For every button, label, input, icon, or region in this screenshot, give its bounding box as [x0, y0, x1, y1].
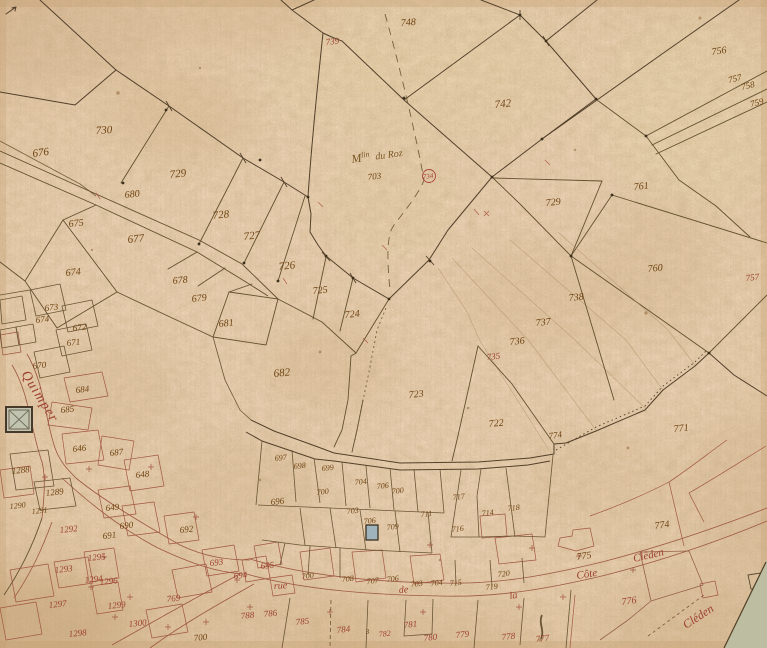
svg-text:704: 704	[430, 578, 443, 588]
svg-text:718: 718	[507, 503, 520, 513]
svg-text:757: 757	[745, 272, 760, 283]
svg-text:729: 729	[545, 196, 561, 209]
svg-text:706: 706	[376, 481, 389, 491]
svg-text:649: 649	[105, 502, 120, 513]
svg-text:714: 714	[481, 508, 494, 518]
svg-text:730: 730	[95, 124, 113, 137]
svg-text:687: 687	[109, 447, 124, 458]
svg-text:693: 693	[209, 557, 224, 568]
svg-text:728: 728	[212, 208, 230, 222]
svg-text:rue: rue	[274, 580, 288, 592]
svg-text:709: 709	[386, 522, 399, 532]
svg-text:771: 771	[673, 422, 689, 435]
svg-text:684: 684	[75, 384, 90, 395]
svg-text:725: 725	[312, 284, 328, 297]
svg-text:700: 700	[193, 632, 208, 643]
svg-text:de: de	[398, 584, 409, 596]
svg-text:698: 698	[293, 461, 306, 471]
svg-text:699: 699	[321, 463, 334, 473]
svg-text:700: 700	[301, 571, 314, 581]
svg-text:715: 715	[449, 578, 462, 588]
svg-text:780: 780	[423, 632, 438, 643]
svg-text:680: 680	[124, 188, 140, 201]
svg-text:727: 727	[243, 229, 261, 243]
svg-text:720: 720	[497, 569, 510, 579]
svg-text:708: 708	[341, 574, 354, 584]
svg-text:692: 692	[179, 524, 194, 535]
svg-text:703: 703	[367, 171, 382, 182]
svg-text:694: 694	[233, 570, 248, 581]
svg-text:785: 785	[295, 616, 310, 627]
svg-text:719: 719	[485, 582, 498, 592]
svg-text:1288: 1288	[11, 464, 30, 476]
svg-text:724: 724	[344, 308, 360, 321]
svg-text:1292: 1292	[59, 523, 78, 535]
svg-text:778: 778	[501, 631, 516, 642]
svg-text:671: 671	[66, 337, 80, 348]
svg-text:691: 691	[102, 530, 116, 541]
svg-text:717: 717	[452, 492, 466, 502]
svg-text:674: 674	[35, 314, 50, 325]
svg-text:723: 723	[408, 388, 424, 401]
svg-text:700: 700	[316, 487, 329, 497]
svg-text:748: 748	[400, 17, 416, 29]
svg-text:703: 703	[346, 506, 359, 516]
svg-text:782: 782	[378, 629, 391, 639]
svg-text:704: 704	[354, 477, 367, 487]
svg-text:703: 703	[410, 579, 423, 589]
svg-text:739: 739	[325, 36, 340, 47]
svg-text:685: 685	[60, 404, 75, 415]
svg-text:726: 726	[278, 259, 296, 273]
svg-text:776: 776	[621, 595, 637, 608]
svg-text:706: 706	[386, 574, 399, 584]
svg-text:736: 736	[509, 335, 525, 348]
svg-text:1295: 1295	[87, 551, 106, 563]
svg-text:777: 777	[535, 633, 550, 644]
svg-text:737: 737	[535, 316, 552, 329]
svg-text:706: 706	[363, 516, 376, 526]
svg-text:1299: 1299	[107, 599, 126, 611]
svg-text:1290: 1290	[9, 500, 26, 511]
svg-text:678: 678	[172, 274, 188, 287]
svg-text:674: 674	[65, 266, 81, 279]
svg-text:769: 769	[166, 593, 181, 604]
svg-text:734: 734	[422, 172, 434, 181]
svg-text:677: 677	[127, 232, 145, 246]
svg-text:738: 738	[568, 291, 584, 304]
svg-text:670: 670	[32, 360, 47, 371]
svg-text:774: 774	[548, 429, 563, 441]
svg-text:1297: 1297	[48, 598, 67, 610]
svg-text:1294: 1294	[84, 573, 103, 585]
svg-text:742: 742	[494, 97, 512, 111]
svg-text:695: 695	[260, 560, 275, 571]
svg-text:716: 716	[451, 524, 464, 534]
svg-text:774: 774	[654, 519, 670, 532]
svg-text:1300: 1300	[128, 617, 147, 629]
svg-text:781: 781	[403, 619, 417, 630]
svg-text:788: 788	[240, 610, 255, 621]
svg-text:760: 760	[647, 262, 663, 275]
svg-text:786: 786	[263, 608, 278, 619]
svg-text:676: 676	[32, 146, 51, 160]
svg-text:673: 673	[44, 302, 59, 313]
svg-text:700: 700	[391, 486, 404, 496]
svg-text:1291: 1291	[31, 505, 48, 516]
svg-text:646: 646	[72, 443, 87, 454]
svg-text:761: 761	[633, 180, 649, 193]
svg-text:735: 735	[486, 351, 501, 362]
svg-text:1298: 1298	[68, 627, 87, 639]
svg-text:775: 775	[576, 550, 592, 563]
svg-text:711: 711	[420, 509, 432, 519]
svg-text:la: la	[509, 590, 518, 602]
svg-text:682: 682	[273, 366, 291, 380]
svg-text:707: 707	[366, 576, 380, 586]
svg-text:784: 784	[336, 624, 351, 635]
svg-text:681: 681	[218, 317, 234, 330]
svg-text:729: 729	[169, 167, 187, 181]
svg-text:1293: 1293	[54, 563, 73, 575]
svg-text:648: 648	[135, 469, 150, 480]
svg-text:690: 690	[119, 520, 134, 531]
svg-text:675: 675	[68, 217, 84, 230]
svg-text:722: 722	[488, 417, 504, 430]
svg-text:779: 779	[455, 629, 470, 640]
svg-text:696: 696	[270, 496, 285, 507]
svg-text:1289: 1289	[45, 486, 64, 498]
svg-text:756: 756	[711, 45, 727, 58]
svg-text:672: 672	[72, 322, 87, 333]
svg-text:679: 679	[191, 292, 207, 305]
svg-text:697: 697	[274, 453, 288, 463]
